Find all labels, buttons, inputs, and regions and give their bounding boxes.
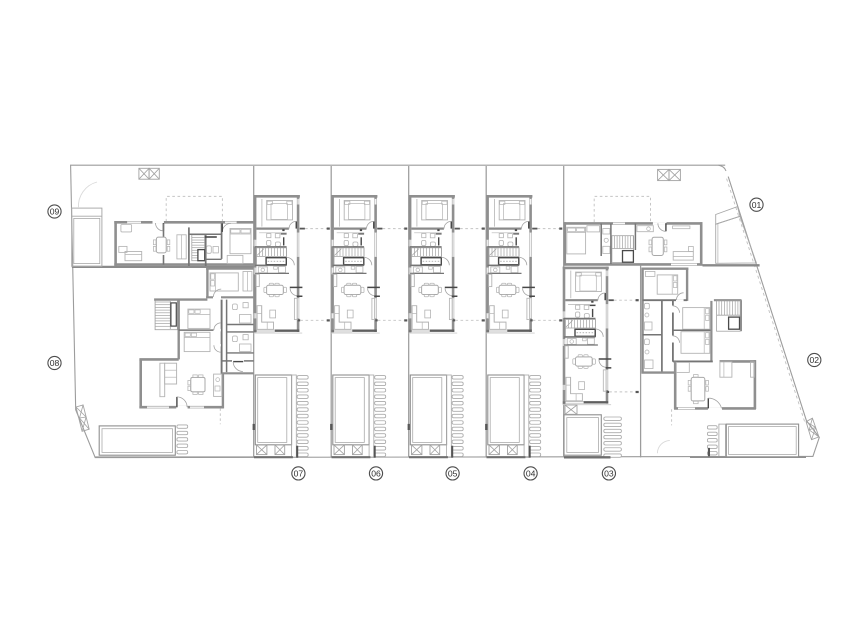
svg-text:01: 01	[752, 200, 762, 210]
svg-text:06: 06	[371, 469, 381, 479]
svg-text:08: 08	[50, 358, 60, 368]
svg-text:07: 07	[294, 469, 304, 479]
svg-text:05: 05	[448, 469, 458, 479]
svg-text:02: 02	[810, 355, 820, 365]
svg-text:04: 04	[526, 469, 536, 479]
svg-text:09: 09	[50, 207, 60, 217]
svg-text:03: 03	[604, 469, 614, 479]
